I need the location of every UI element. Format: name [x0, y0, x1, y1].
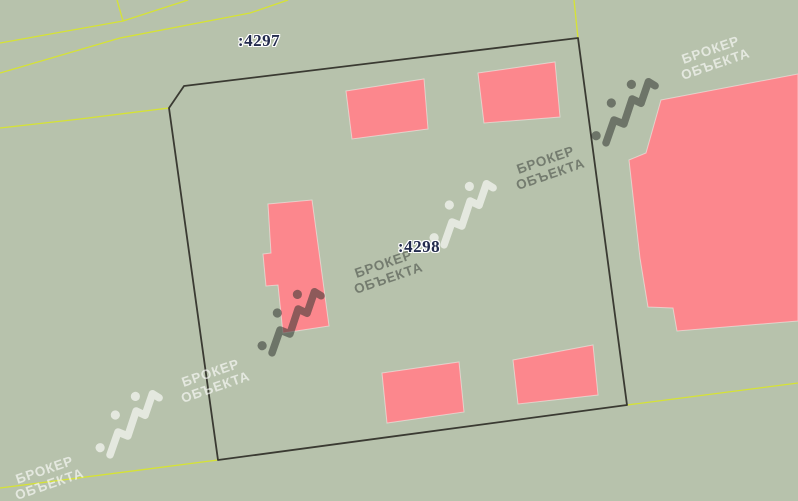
road-edge-line [0, 108, 169, 128]
road-edge-line [0, 0, 188, 43]
road-edge-line [627, 383, 798, 405]
building-footprint [382, 362, 464, 423]
building-footprint [263, 200, 329, 333]
building-footprint [629, 74, 798, 331]
road-edge-line [574, 0, 578, 38]
map-canvas [0, 0, 798, 501]
building-footprint [346, 79, 428, 139]
cadastral-map-view[interactable]: БРОКЕРОБЪЕКТА БРОКЕРОБЪЕКТА БРОКЕРОБЪЕКТ… [0, 0, 798, 501]
road-edge-line [0, 460, 218, 488]
road-edge-line [117, 0, 123, 21]
road-edge-line [0, 0, 288, 73]
building-footprint [478, 62, 560, 123]
building-footprint [513, 345, 598, 404]
